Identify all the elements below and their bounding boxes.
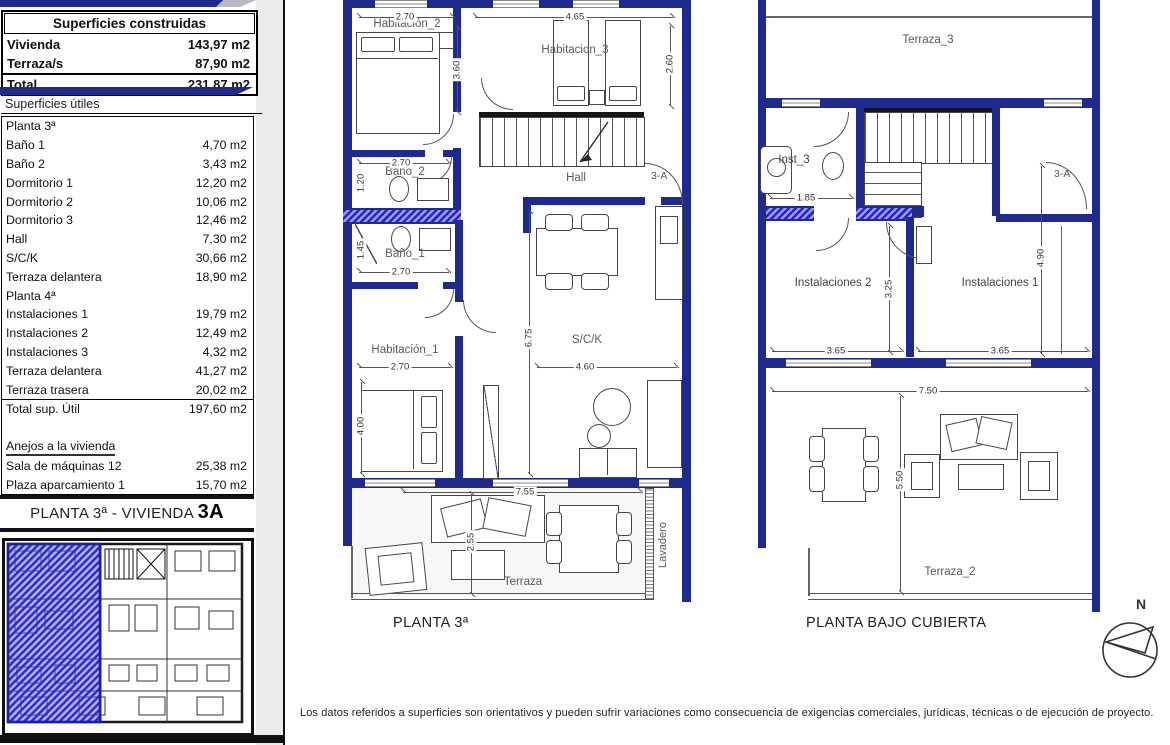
armchair-cushion	[911, 462, 933, 490]
door-arc	[816, 218, 849, 251]
dim-hab2-w: 2.70	[394, 12, 417, 23]
disclaimer-text: Los datos referidos a superficies son or…	[300, 707, 1168, 719]
table-row: Dormitorio 1 12,20 m2	[2, 173, 253, 192]
toilet	[389, 176, 409, 202]
built-surfaces-rows: Vivienda 143,97 m2 Terraza/s 87,90 m2	[3, 35, 256, 73]
row-label: Terraza delantera	[6, 364, 102, 378]
table-row: Terraza trasera 20,02 m2	[2, 380, 253, 399]
duct	[916, 226, 932, 264]
row-label: Terraza/s	[7, 56, 63, 71]
dim-inst2-w: 3.65	[825, 346, 848, 357]
room-label-sck: S/C/K	[572, 334, 602, 346]
room-label-terraza: Terraza	[504, 576, 542, 588]
kitchen-sink	[660, 216, 678, 244]
coffee-table	[451, 550, 505, 580]
floorplan-sheet-page: { "colors": {"wall": "#1f2b8c", "highlig…	[0, 0, 1170, 745]
wall	[992, 108, 1000, 216]
dim-line	[537, 367, 677, 368]
plan-bajo-cubierta: Terraza_3 Inst_3 1.85 3-A Instalaciones …	[758, 0, 1100, 650]
window	[946, 359, 1031, 367]
key-plan-thumbnail	[2, 538, 254, 736]
chair	[809, 436, 825, 462]
plan-title-prefix: PLANTA 3ª - VIVIENDA	[30, 505, 197, 522]
room-label-inst1: Instalaciones 1	[962, 277, 1039, 289]
dim-bano2-w: 2.70	[390, 158, 413, 169]
row-label: Vivienda	[7, 37, 60, 52]
shaft-hatch	[766, 206, 814, 221]
chair	[581, 273, 609, 290]
compass-icon	[1096, 610, 1166, 686]
dim-bano1-w: 2.70	[390, 267, 413, 278]
table-row: Planta 3ª	[2, 117, 253, 136]
wall	[343, 490, 352, 546]
row-value: 20,02 m2	[196, 383, 247, 397]
wall	[455, 336, 463, 482]
bed-pillow	[361, 37, 395, 52]
dim-hab3-d: 2.60	[665, 53, 676, 76]
sliding-door	[365, 479, 435, 487]
row-value: 41,27 m2	[196, 364, 247, 378]
shaft-hatch	[343, 208, 461, 224]
useful-surfaces-title: Superficies útiles	[1, 96, 262, 114]
room-label-hab1: Habitación_1	[371, 344, 438, 356]
dim-line	[900, 396, 901, 592]
terrace-edge	[351, 546, 353, 598]
stairs	[864, 112, 994, 164]
window	[782, 99, 820, 107]
dim-left-d: 3.60	[452, 59, 463, 82]
row-value: 12,46 m2	[196, 213, 247, 227]
dim-width: 7.50	[917, 386, 940, 397]
bed-pillow	[421, 396, 437, 428]
row-label: Dormitorio 1	[6, 176, 73, 190]
nightstand	[439, 32, 454, 49]
row-label: Instalaciones 3	[6, 345, 88, 359]
dim-sck-w: 4.60	[574, 362, 597, 373]
dim-hab3-w: 4.65	[564, 12, 587, 23]
chair	[616, 540, 632, 564]
dim-terraza-d: 2.55	[466, 531, 477, 554]
table-row: Terraza/s 87,90 m2	[3, 54, 256, 73]
dim-sck-d: 6.75	[524, 327, 535, 350]
row-label: Dormitorio 2	[6, 195, 73, 209]
chair	[546, 540, 562, 564]
dim-inst1-w: 3.65	[989, 346, 1012, 357]
chair	[863, 436, 879, 462]
wall	[455, 220, 463, 302]
bed-pillow	[557, 86, 585, 101]
row-value: 3,43 m2	[203, 157, 247, 171]
divider-wall-band	[0, 87, 215, 95]
table-row: Hall 7,30 m2	[2, 230, 253, 249]
summary-panel-sheet: Superficies construidas Vivienda 143,97 …	[0, 0, 256, 745]
row-value: 12,20 m2	[196, 176, 247, 190]
unit-highlight	[8, 544, 100, 722]
table-row: Dormitorio 3 12,46 m2	[2, 211, 253, 230]
row-value: 12,49 m2	[196, 326, 247, 340]
table-row: Total sup. Útil 197,60 m2	[2, 399, 253, 419]
door-label: 3-A	[1054, 168, 1070, 180]
key-plan-drawing	[5, 541, 245, 727]
table-row: Sala de máquinas 12 25,38 m2	[2, 456, 253, 475]
door-arc	[814, 112, 849, 147]
wall	[1092, 0, 1100, 612]
north-compass: N	[1096, 596, 1170, 696]
built-surfaces-title: Superficies construidas	[4, 13, 255, 34]
dim-inst2-d: 3.25	[884, 278, 895, 301]
row-value: 19,79 m2	[196, 307, 247, 321]
table-row	[2, 419, 253, 438]
top-wall-band	[0, 0, 200, 7]
table-row: Instalaciones 2 12,49 m2	[2, 324, 253, 343]
room-label-inst2: Instalaciones 2	[795, 277, 872, 289]
row-value: 87,90 m2	[195, 56, 250, 71]
table-row: Instalaciones 1 19,79 m2	[2, 305, 253, 324]
dim-terraza2-d: 5.50	[895, 469, 906, 492]
chair	[863, 466, 879, 492]
wall	[523, 197, 645, 205]
wall	[758, 0, 766, 548]
chair	[546, 512, 562, 536]
dim-terraza-w: 7.55	[514, 487, 537, 498]
door-arc	[481, 78, 513, 110]
row-label: Baño 2	[6, 157, 45, 171]
terrace-edge	[766, 16, 1092, 18]
shaft-hatch	[856, 206, 912, 221]
summary-panel: Superficies construidas Vivienda 143,97 …	[0, 0, 285, 745]
row-value: 30,66 m2	[196, 251, 247, 265]
nightstand	[589, 90, 605, 105]
bed-pillow	[421, 432, 437, 464]
table-row: Plaza aparcamiento 1 15,70 m2	[2, 475, 253, 494]
sink	[417, 178, 449, 201]
window	[493, 0, 539, 8]
round-stool	[587, 424, 611, 448]
wardrobe	[483, 385, 499, 479]
terrace-edge	[808, 593, 1092, 600]
dim-hab1-w: 2.70	[389, 362, 412, 373]
dim-inst1-d: 4.90	[1036, 247, 1047, 270]
dim-inst3-w: 1.85	[795, 193, 818, 204]
dim-bano2-d: 1.20	[356, 172, 367, 195]
wall	[912, 206, 924, 217]
tv-unit-line	[607, 449, 608, 475]
bed-pillow	[399, 37, 433, 52]
bed-pillow	[609, 86, 637, 101]
door-label: 3-A	[651, 170, 667, 182]
stair-arrow	[480, 118, 644, 166]
row-value: 10,06 m2	[196, 195, 247, 209]
coffee-table	[958, 464, 1004, 490]
armchair-cushion	[1028, 461, 1050, 491]
wall	[343, 8, 352, 490]
wall	[352, 150, 425, 157]
chair	[545, 273, 573, 290]
toilet	[822, 152, 844, 180]
door-arc	[463, 300, 496, 333]
table-row: Vivienda 143,97 m2	[3, 35, 256, 54]
row-label: Total sup. Útil	[6, 402, 80, 416]
terrace-edge	[808, 548, 810, 596]
row-label: Plaza aparcamiento 1	[6, 478, 125, 492]
row-label: Planta 4ª	[6, 289, 56, 303]
plan-title-unit: 3A	[198, 501, 224, 523]
wall	[996, 214, 1092, 222]
window	[786, 359, 871, 367]
table-row: Anejos a la vivienda	[2, 438, 253, 457]
room-label-lavadero: Lavadero	[657, 505, 669, 585]
terrace-edge	[351, 593, 645, 600]
row-label: Anejos a la vivienda	[6, 439, 115, 454]
chair	[616, 512, 632, 536]
window	[1044, 99, 1082, 107]
plan-title: PLANTA 3ª - VIVIENDA 3A	[0, 501, 254, 524]
sofa	[647, 380, 682, 468]
door-arc	[425, 289, 454, 318]
partition-line	[1061, 226, 1062, 354]
row-label: Terraza delantera	[6, 270, 102, 284]
row-label: Instalaciones 2	[6, 326, 88, 340]
row-value: 18,90 m2	[196, 270, 247, 284]
room-label-inst3: Inst_3	[778, 154, 809, 166]
chair	[545, 214, 573, 231]
title-rule-top	[0, 495, 254, 499]
row-label: Sala de máquinas 12	[6, 459, 122, 473]
row-value: 197,60 m2	[189, 402, 247, 416]
row-label: Terraza trasera	[6, 383, 89, 397]
bed-line	[357, 58, 438, 59]
lavadero-divider	[645, 488, 654, 600]
table-row: Dormitorio 2 10,06 m2	[2, 192, 253, 211]
row-value: 143,97 m2	[188, 37, 250, 52]
row-value: 25,38 m2	[196, 459, 247, 473]
row-label: Baño 1	[6, 138, 45, 152]
chair	[809, 466, 825, 492]
stairs	[479, 117, 645, 167]
room-label-bano1: Baño_1	[385, 248, 425, 260]
door-opening	[639, 479, 669, 487]
room-label-hab3: Habitacion_3	[541, 44, 608, 56]
row-label: Planta 3ª	[6, 119, 56, 133]
bed-line	[413, 391, 414, 469]
table-row: Terraza delantera 41,27 m2	[2, 361, 253, 380]
window	[375, 0, 427, 8]
room-label-terraza2: Terraza_2	[924, 566, 975, 578]
wall	[352, 282, 418, 289]
row-value: 4,32 m2	[203, 345, 247, 359]
outdoor-table	[559, 505, 619, 573]
dim-bano1-d: 1.45	[356, 239, 367, 262]
armchair-cushion	[378, 552, 415, 585]
dining-table	[536, 228, 618, 276]
table-row: Terraza delantera 18,90 m2	[2, 267, 253, 286]
window	[573, 0, 619, 8]
row-label: Hall	[6, 232, 27, 246]
room-label-hall: Hall	[566, 172, 586, 184]
table-row: Instalaciones 3 4,32 m2	[2, 343, 253, 362]
row-value: 4,70 m2	[203, 138, 247, 152]
outdoor-table	[822, 428, 866, 502]
wall	[453, 148, 461, 210]
row-value: 15,70 m2	[196, 478, 247, 492]
wall	[682, 0, 691, 602]
room-label-terraza3: Terraza_3	[902, 34, 953, 46]
row-value: 7,30 m2	[203, 232, 247, 246]
chair	[581, 214, 609, 231]
table-row: S/C/K 30,66 m2	[2, 249, 253, 268]
tv-unit	[579, 448, 637, 478]
table-row: Planta 4ª	[2, 286, 253, 305]
plan3-caption: PLANTA 3ª	[393, 615, 469, 631]
wall	[856, 108, 864, 216]
row-label: S/C/K	[6, 251, 38, 265]
table-row: Baño 1 4,70 m2	[2, 136, 253, 155]
row-label: Instalaciones 1	[6, 307, 88, 321]
wall	[443, 150, 461, 157]
built-surfaces-table: Superficies construidas Vivienda 143,97 …	[1, 10, 258, 96]
round-table	[593, 388, 631, 426]
plan-planta3: Lavadero Habitación_2 Hab	[343, 0, 691, 645]
planbc-caption: PLANTA BAJO CUBIERTA	[806, 615, 986, 631]
title-rule-bottom	[0, 528, 254, 532]
row-label: Dormitorio 3	[6, 213, 73, 227]
dim-hab1-d: 4.00	[356, 415, 367, 438]
useful-surfaces-table: Planta 3ª Baño 1 4,70 m2 Baño 2 3,43 m2 …	[1, 116, 254, 495]
table-row: Baño 2 3,43 m2	[2, 155, 253, 174]
panel-bottom-bar	[0, 735, 283, 743]
